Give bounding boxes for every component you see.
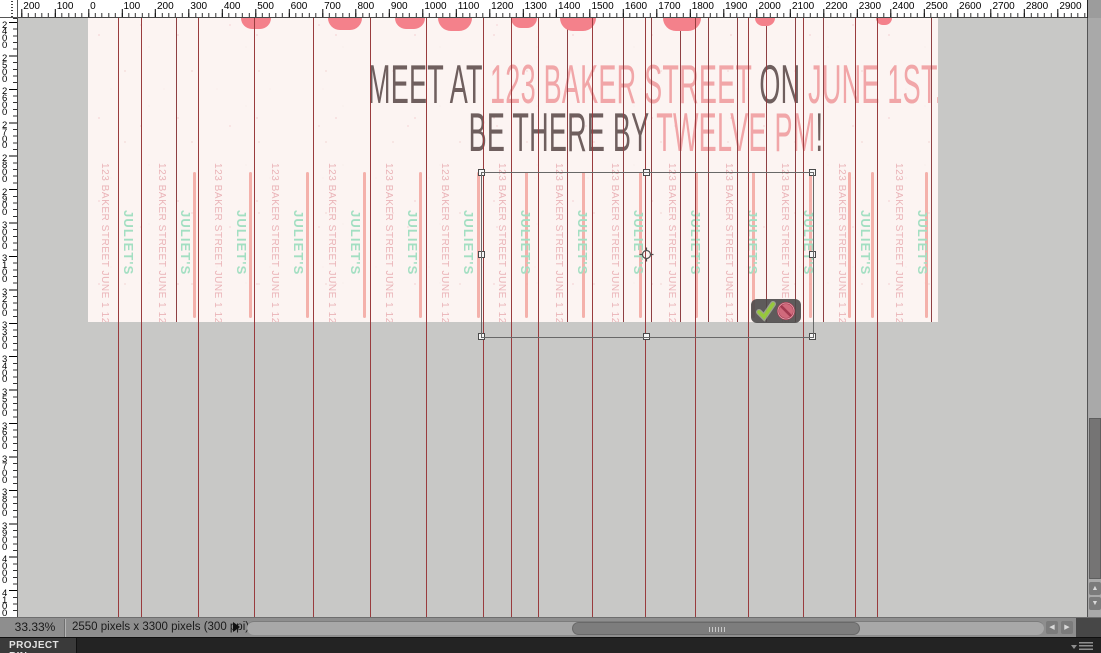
polka-dot-shape xyxy=(328,18,362,30)
tear-strip-address-text: 123 BAKER STREET JUNE 1 12 PM xyxy=(269,163,280,322)
title-segment: ! xyxy=(815,102,823,163)
ruler-top-label: 2800 xyxy=(1026,1,1048,12)
ruler-top-label: 2200 xyxy=(825,1,847,12)
guide-line xyxy=(141,18,142,617)
tear-strip-separator-line xyxy=(823,18,824,322)
ruler-left-label: 3800 xyxy=(2,490,9,518)
ruler-top-label: 200 xyxy=(23,1,40,12)
vertical-ruler: 2400250026002700280029003000310032003300… xyxy=(0,18,18,617)
tear-strip-address-text: 123 BAKER STREET JUNE 1 12 PM xyxy=(893,163,904,322)
polka-dot-shape xyxy=(511,18,537,28)
tear-strip-name-text: JULIET'S xyxy=(405,210,420,280)
ruler-left-label: 3600 xyxy=(2,424,9,452)
tear-strip-address-text: 123 BAKER STREET JUNE 1 12 PM xyxy=(383,163,394,322)
status-divider xyxy=(64,619,66,637)
ruler-top-label: 600 xyxy=(291,1,308,12)
polka-dot-shape xyxy=(241,18,271,29)
project-bin-menu-icon[interactable] xyxy=(1079,642,1093,650)
tear-strip-accent-line xyxy=(477,172,480,318)
ruler-top-label: 1400 xyxy=(558,1,580,12)
ruler-left-label: 2600 xyxy=(2,89,9,117)
ruler-top-label: 1000 xyxy=(424,1,446,12)
ruler-left-label: 3400 xyxy=(2,357,9,385)
ruler-top-label: 2700 xyxy=(992,1,1014,12)
scrollbar-corner xyxy=(1076,618,1101,638)
scroll-left-arrow[interactable]: ◀ xyxy=(1046,621,1058,634)
ruler-top-label: 900 xyxy=(391,1,408,12)
title-segment: BE THERE BY xyxy=(468,102,656,163)
guide-line xyxy=(118,18,119,617)
horizontal-ruler: 2001000100200300400500600700800900100011… xyxy=(18,0,1087,18)
transform-reference-point-icon xyxy=(639,247,654,262)
ruler-left-label: 3300 xyxy=(2,323,9,351)
ruler-left-label: 2700 xyxy=(2,123,9,151)
tear-strip-name-text: JULIET'S xyxy=(915,210,930,280)
ruler-top-label: 100 xyxy=(124,1,141,12)
ruler-top-label: 2000 xyxy=(759,1,781,12)
title-segment: JUNE 1ST. xyxy=(808,54,938,115)
tear-strip-name-text: JULIET'S xyxy=(234,210,249,280)
guide-line xyxy=(877,18,878,617)
tear-strip-address-text: 123 BAKER STREET JUNE 1 12 PM xyxy=(326,163,337,322)
ruler-top-label: 800 xyxy=(358,1,375,12)
horizontal-scrollbar[interactable] xyxy=(247,621,1044,635)
ruler-top-label: 1600 xyxy=(625,1,647,12)
flyer-title-line1: MEET AT 123 BAKER STREET ON JUNE 1ST. xyxy=(368,62,938,107)
ruler-top-label: 500 xyxy=(257,1,274,12)
scrollbar-grip-dots-icon xyxy=(709,627,725,632)
guide-line xyxy=(370,18,371,617)
tear-strip-separator-line xyxy=(931,18,932,322)
vertical-scrollbar[interactable]: ▲ ▼ xyxy=(1087,18,1101,617)
status-popup-arrow-icon[interactable] xyxy=(233,622,240,632)
scrollbar-top-cap xyxy=(1087,0,1101,18)
polka-dot-shape xyxy=(876,18,892,25)
tear-strip-name-text: JULIET'S xyxy=(121,210,136,280)
ruler-left-label: 3100 xyxy=(2,256,9,284)
zoom-level-field[interactable]: 33.33% xyxy=(8,620,62,635)
ruler-origin-corner[interactable] xyxy=(0,0,18,18)
ruler-top-label: 1900 xyxy=(725,1,747,12)
tear-strip-name-text: JULIET'S xyxy=(858,210,873,280)
scroll-right-arrow[interactable]: ▶ xyxy=(1061,621,1073,634)
polka-dot-shape xyxy=(755,18,775,26)
ruler-left-label: 3700 xyxy=(2,457,9,485)
ruler-top-label: 1800 xyxy=(692,1,714,12)
tear-strip-accent-line xyxy=(306,172,309,318)
tear-strip-separator-line xyxy=(176,18,177,322)
ruler-top-label: 1200 xyxy=(491,1,513,12)
ruler-left-label: 4100 xyxy=(2,591,9,617)
guide-line xyxy=(254,18,255,617)
ruler-top-label: 1100 xyxy=(458,1,480,12)
project-bin-menu-caret-icon[interactable] xyxy=(1071,645,1077,649)
ruler-top-label: 2900 xyxy=(1059,1,1081,12)
ruler-major-ticks xyxy=(9,18,17,617)
tear-strip-address-text: 123 BAKER STREET JUNE 1 12 PM xyxy=(99,163,110,322)
scroll-up-arrow[interactable]: ▲ xyxy=(1089,582,1101,595)
tear-strip-address-text: 123 BAKER STREET JUNE 1 12 PM xyxy=(439,163,450,322)
cancel-no-symbol-button[interactable] xyxy=(774,299,798,323)
ruler-left-label: 4000 xyxy=(2,557,9,585)
ruler-top-label: 1500 xyxy=(591,1,613,12)
ruler-top-label: 700 xyxy=(324,1,341,12)
project-bin-label: PROJECT BIN xyxy=(9,640,76,653)
polka-dot-shape xyxy=(395,18,425,29)
ruler-top-label: 2300 xyxy=(859,1,881,12)
ruler-top-label: 100 xyxy=(57,1,74,12)
status-bar: 33.33% 2550 pixels x 3300 pixels (300 pp… xyxy=(0,617,1101,637)
guide-line xyxy=(198,18,199,617)
tear-strip-name-text: JULIET'S xyxy=(348,210,363,280)
polka-dot-shape xyxy=(560,18,596,31)
horizontal-scrollbar-thumb[interactable] xyxy=(572,622,860,635)
ruler-left-label: 2400 xyxy=(2,23,9,51)
project-bin-bar: PROJECT BIN xyxy=(0,637,1101,653)
ruler-origin-dots-icon xyxy=(11,1,13,17)
guide-line xyxy=(426,18,427,617)
ruler-top-label: 400 xyxy=(224,1,241,12)
ruler-top-label: 2400 xyxy=(892,1,914,12)
scroll-down-arrow[interactable]: ▼ xyxy=(1089,597,1101,610)
tear-strip-address-text: 123 BAKER STREET JUNE 1 12 PM xyxy=(212,163,223,322)
document-size-text: 2550 pixels x 3300 pixels (300 ppi) xyxy=(72,621,249,633)
tear-strip-accent-line xyxy=(848,172,851,318)
ruler-top-label: 0 xyxy=(90,1,96,12)
ruler-top-label: 2500 xyxy=(926,1,948,12)
ruler-top-label: 300 xyxy=(190,1,207,12)
ruler-top-label: 2600 xyxy=(959,1,981,12)
ruler-top-label: 1300 xyxy=(525,1,547,12)
polka-dot-shape xyxy=(438,18,472,31)
tear-strip-name-text: JULIET'S xyxy=(178,210,193,280)
transform-commit-toolbar xyxy=(751,299,801,323)
ruler-left-label: 3900 xyxy=(2,524,9,552)
ruler-left-label: 3500 xyxy=(2,390,9,418)
tear-strip-accent-line xyxy=(249,172,252,318)
ruler-left-label: 2900 xyxy=(2,190,9,218)
project-bin-tab[interactable]: PROJECT BIN xyxy=(0,638,77,653)
ruler-left-label: 3200 xyxy=(2,290,9,318)
document-viewport[interactable]: MEET AT 123 BAKER STREET ON JUNE 1ST. BE… xyxy=(18,18,1087,617)
photo-editor-window: 2001000100200300400500600700800900100011… xyxy=(0,0,1101,653)
ruler-top-label: 200 xyxy=(157,1,174,12)
ruler-top-label: 1700 xyxy=(658,1,680,12)
tear-strip-accent-line xyxy=(363,172,366,318)
ruler-left-label: 3000 xyxy=(2,223,9,251)
tear-strip-address-text: 123 BAKER STREET JUNE 1 12 PM xyxy=(156,163,167,322)
ruler-left-label: 2500 xyxy=(2,56,9,84)
tear-strip-address-text: 123 BAKER STREET JUNE 1 12 PM xyxy=(836,163,847,322)
ruler-top-label: 2100 xyxy=(792,1,814,12)
tear-strip-name-text: JULIET'S xyxy=(291,210,306,280)
guide-line xyxy=(855,18,856,617)
tear-strip-accent-line xyxy=(193,172,196,318)
guide-line xyxy=(313,18,314,617)
ruler-left-label: 2800 xyxy=(2,156,9,184)
tear-strip-name-text: JULIET'S xyxy=(461,210,476,280)
vertical-scrollbar-thumb[interactable] xyxy=(1089,418,1101,579)
